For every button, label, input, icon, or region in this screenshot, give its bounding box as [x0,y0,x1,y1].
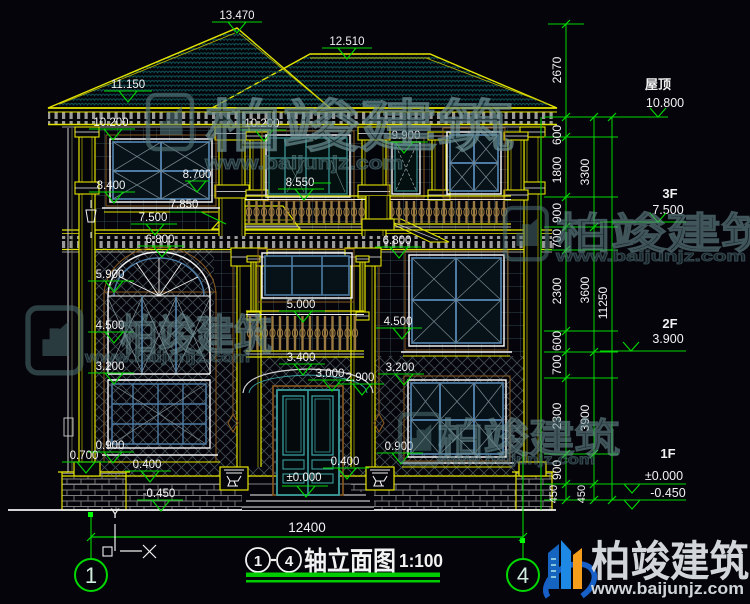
svg-text:11250: 11250 [596,286,610,319]
svg-text:13.470: 13.470 [219,10,254,22]
svg-text:2F: 2F [662,316,677,331]
svg-text:12.510: 12.510 [329,36,364,48]
svg-text:1: 1 [254,553,262,570]
svg-text:0.400: 0.400 [133,459,162,471]
svg-text:Y: Y [110,505,120,521]
svg-text:5.900: 5.900 [96,269,125,281]
svg-text:8.550: 8.550 [286,177,315,189]
svg-text:屋顶: 屋顶 [645,77,671,92]
svg-text:10.200: 10.200 [93,117,128,129]
svg-text:1800: 1800 [550,156,564,183]
svg-text:6.800: 6.800 [146,234,175,246]
svg-text:1F: 1F [660,446,675,461]
svg-text:轴立面图: 轴立面图 [304,546,396,576]
svg-text:3.900: 3.900 [652,332,683,346]
svg-text:0.700: 0.700 [70,450,99,462]
svg-text:0.400: 0.400 [331,456,360,468]
svg-text:5.000: 5.000 [287,299,316,311]
svg-text:1:100: 1:100 [399,551,443,571]
svg-text:3600: 3600 [578,276,592,303]
svg-text:4: 4 [517,563,529,588]
svg-text:-0.450: -0.450 [650,486,685,500]
svg-text:600: 600 [550,331,564,351]
svg-text:2670: 2670 [550,56,564,83]
svg-text:www.baijunjz.com: www.baijunjz.com [84,349,250,366]
svg-text:±0.000: ±0.000 [645,469,683,483]
svg-text:450: 450 [576,485,588,503]
svg-text:0.900: 0.900 [96,440,125,452]
svg-text:7.850: 7.850 [170,199,199,211]
svg-text:1: 1 [85,563,97,588]
svg-text:12400: 12400 [288,520,326,535]
svg-text:±0.000: ±0.000 [286,472,321,484]
svg-text:3.000: 3.000 [316,368,345,380]
svg-text:www.baijunjz.com: www.baijunjz.com [437,451,595,467]
svg-text:www.baijunjz.com: www.baijunjz.com [555,248,746,265]
svg-text:4.500: 4.500 [384,316,413,328]
svg-text:柏竣建筑: 柏竣建筑 [591,538,749,585]
svg-text:柏竣建筑: 柏竣建筑 [205,95,514,158]
svg-text:3.400: 3.400 [287,352,316,364]
svg-text:8.400: 8.400 [97,180,126,192]
svg-text:www.baijunjz.com: www.baijunjz.com [590,580,744,598]
svg-text:6.800: 6.800 [383,235,412,247]
svg-text:7.500: 7.500 [139,212,168,224]
svg-text:4: 4 [285,553,294,570]
svg-text:3300: 3300 [578,158,592,185]
svg-text:11.150: 11.150 [111,79,145,91]
svg-text:450: 450 [548,485,560,503]
svg-text:600: 600 [550,125,564,145]
svg-text:-0.450: -0.450 [143,488,176,500]
svg-text:2.900: 2.900 [346,372,375,384]
svg-text:2300: 2300 [550,277,564,304]
svg-text:700: 700 [550,355,564,375]
svg-text:3F: 3F [662,186,677,201]
svg-text:10.800: 10.800 [646,96,684,110]
svg-text:www.baijunjz.com: www.baijunjz.com [204,153,403,173]
svg-text:3.200: 3.200 [386,362,415,374]
